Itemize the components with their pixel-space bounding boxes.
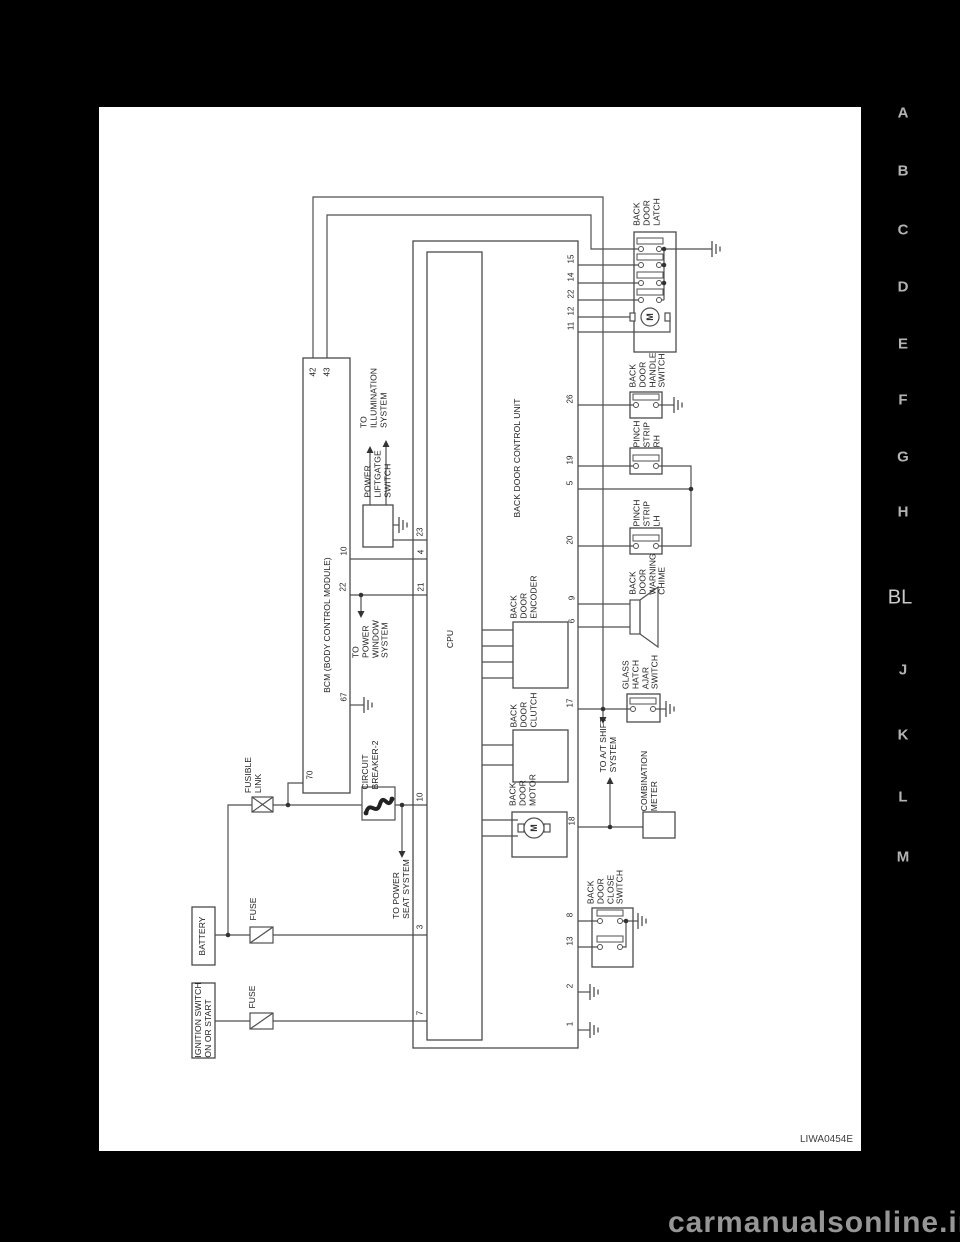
latch-motor-m: M — [645, 313, 655, 321]
ground-icon — [364, 697, 372, 713]
to-at-shift-label: TO A/T SHIFT SYSTEM — [599, 718, 619, 773]
unit-pin-11: 11 — [567, 322, 576, 330]
unit-pin-9: 9 — [568, 596, 577, 600]
section-tab-l: L — [898, 789, 907, 806]
unit-pin-19: 19 — [566, 456, 575, 465]
unit-pin-10: 10 — [416, 793, 425, 802]
encoder-box — [513, 622, 568, 688]
section-tab-h: H — [898, 504, 909, 521]
bcm-pin-42: 42 — [309, 368, 318, 377]
door-motor-brush-right — [544, 824, 550, 832]
bcm-pin-22: 22 — [339, 583, 348, 592]
unit-pin-20: 20 — [566, 536, 575, 545]
unit-pin-21: 21 — [417, 583, 426, 592]
to-power-seat-label: TO POWER SEAT SYSTEM — [392, 859, 412, 919]
ground-icon — [666, 701, 674, 717]
ground-icon — [590, 1022, 598, 1038]
flow-arrows — [358, 440, 614, 858]
arrow-at-shift-up — [607, 777, 614, 784]
clutch-label: BACK DOOR CLUTCH — [509, 692, 538, 727]
watermark: carmanualsonline.info — [668, 1206, 960, 1240]
bcm-pin-70: 70 — [306, 771, 315, 780]
wires — [215, 197, 712, 1030]
to-power-window-label: TO POWER WINDOW SYSTEM — [351, 620, 390, 658]
section-tab-g: G — [897, 449, 909, 466]
scanned-manual-page: BCM (BODY CONTROL MODULE) BACK DOOR CONT… — [0, 0, 960, 1242]
chime-speaker-icon — [630, 587, 658, 647]
ground-icon — [399, 517, 407, 533]
unit-pin-2: 2 — [566, 984, 575, 988]
section-tab-m: M — [897, 849, 910, 866]
pinch-strip-rh-label: PINCH STRIP RH — [632, 421, 661, 448]
arrow-illumination-2 — [383, 440, 390, 447]
section-tab-k: K — [898, 727, 909, 744]
unit-pin-23: 23 — [416, 528, 425, 537]
section-tab-f: F — [898, 392, 907, 409]
unit-pin-6: 6 — [568, 619, 577, 623]
unit-pin-7: 7 — [416, 1011, 425, 1015]
door-motor-brush-left — [518, 824, 524, 832]
liftgate-switch-box — [363, 505, 393, 547]
chime-label: BACK DOOR WARNING CHIME — [628, 553, 667, 594]
unit-pin-3: 3 — [416, 925, 425, 929]
figure-code: LIWA0454E — [800, 1134, 853, 1145]
latch-label: BACK DOOR LATCH — [632, 198, 661, 226]
section-tab-j: J — [899, 662, 907, 679]
bcm-pin-67: 67 — [340, 693, 349, 702]
ground-icon — [712, 241, 720, 257]
unit-pin-5: 5 — [566, 481, 575, 485]
latch-motor-brush-left — [630, 313, 635, 321]
junction-dots — [226, 247, 694, 938]
door-motor-m: M — [529, 824, 539, 832]
ground-icon — [674, 397, 682, 413]
section-tab-b: B — [898, 163, 909, 180]
unit-pin-8: 8 — [566, 913, 575, 917]
fuse-battery-label: FUSE — [249, 897, 259, 920]
latch-motor-brush-right — [665, 313, 670, 321]
glass-hatch-label: GLASS HATCH AJAR SWITCH — [621, 655, 660, 689]
ground-icon — [590, 984, 598, 1000]
combination-meter-label: COMBINATION METER — [640, 751, 660, 811]
ground-icon — [638, 913, 646, 929]
protection-devices — [250, 787, 395, 1029]
unit-pin-4: 4 — [417, 550, 426, 554]
unit-pin-26: 26 — [566, 395, 575, 404]
wiring-diagram — [0, 0, 960, 1242]
section-tab-d: D — [898, 279, 909, 296]
to-illumination-label: TO ILLUMINATION SYSTEM — [359, 368, 388, 428]
back-door-control-unit-box — [413, 241, 578, 1048]
unit-pin-1: 1 — [566, 1022, 575, 1026]
section-tab-bl-active: BL — [888, 587, 912, 610]
motor-label: BACK DOOR MOTOR — [508, 774, 537, 806]
section-tab-e: E — [898, 336, 908, 353]
bcm-pin-43: 43 — [323, 368, 332, 377]
section-tab-c: C — [898, 222, 909, 239]
handle-switch-label: BACK DOOR HANDLE SWITCH — [628, 352, 667, 387]
encoder-label: BACK DOOR ENCODER — [509, 575, 538, 618]
unit-pin-17: 17 — [566, 699, 575, 708]
control-unit-label: BACK DOOR CONTROL UNIT — [513, 398, 523, 517]
unit-pin-14: 14 — [567, 273, 576, 282]
cpu-label: CPU — [446, 630, 456, 648]
unit-pin-18: 18 — [568, 817, 577, 826]
unit-pin-12: 12 — [567, 307, 576, 316]
combination-meter-box — [643, 812, 675, 838]
bcm-label: BCM (BODY CONTROL MODULE) — [323, 557, 333, 693]
fusible-link-label: FUSIBLE LINK — [244, 757, 264, 793]
ignition-switch-label: IGNITION SWITCH ON OR START — [194, 982, 214, 1057]
bcm-pin-10: 10 — [340, 547, 349, 556]
battery-label: BATTERY — [198, 916, 208, 955]
fuse-ignition-label: FUSE — [248, 985, 258, 1008]
close-switch-label: BACK DOOR CLOSE SWITCH — [586, 870, 625, 904]
unit-pin-13: 13 — [566, 937, 575, 946]
unit-pin-22: 22 — [567, 290, 576, 299]
arrow-power-seat — [399, 851, 406, 858]
section-tab-a: A — [898, 105, 909, 122]
pinch-strip-lh-label: PINCH STRIP LH — [632, 500, 661, 527]
circuit-breaker-label: CIRCUIT BREAKER-2 — [361, 740, 381, 789]
unit-pin-15: 15 — [567, 255, 576, 264]
arrow-power-window — [358, 611, 365, 618]
liftgate-switch-label: POWER LIFTGATGE SWITCH — [363, 450, 392, 498]
